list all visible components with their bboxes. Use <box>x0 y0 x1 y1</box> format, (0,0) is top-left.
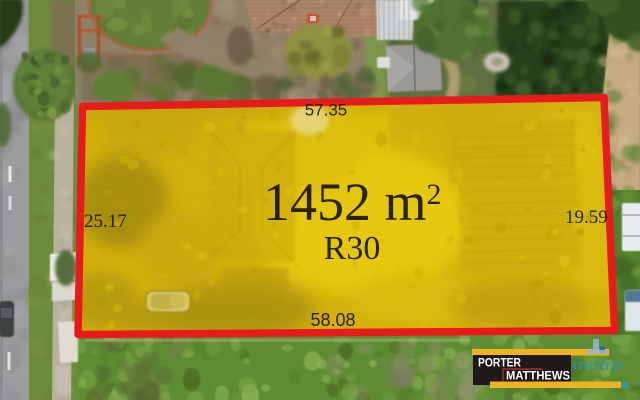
svg-text:58.08: 58.08 <box>310 310 355 330</box>
svg-text:metro: metro <box>572 357 623 374</box>
svg-text:MATTHEWS: MATTHEWS <box>506 371 570 383</box>
svg-text:19.59: 19.59 <box>565 207 608 228</box>
svg-text:57.35: 57.35 <box>305 101 348 120</box>
svg-text:R30: R30 <box>324 230 381 267</box>
svg-text:25.17: 25.17 <box>84 211 127 232</box>
svg-text:PORTER: PORTER <box>478 356 521 370</box>
svg-text:1452 m2: 1452 m2 <box>263 172 442 232</box>
